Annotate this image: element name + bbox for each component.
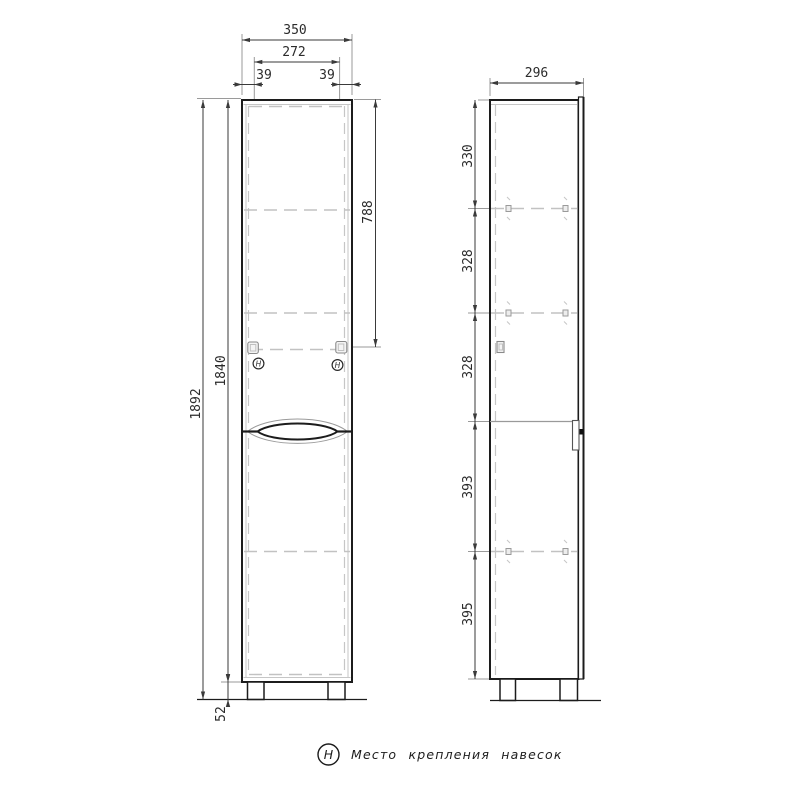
cabinet-drawing-svg: H H 350 272 39 39 [0,0,800,800]
dim-hinge-span: 272 [282,45,305,60]
legend: H Место крепления навесок [318,744,563,765]
dim-hinge-offset-left: 39 [256,68,272,83]
dim-section-5: 395 [461,602,476,625]
technical-drawing-page: H H 350 272 39 39 [0,0,800,800]
cabinet-side-body [490,100,579,679]
side-legs [490,679,601,701]
handle-side-profile [573,421,580,451]
front-legs [197,682,367,700]
side-view: 296 330 328 328 393 395 [461,66,601,701]
dim-hinge-from-top: 788 [361,200,376,223]
dim-overall-width: 350 [283,23,306,38]
dim-total-height: 1892 [189,388,204,419]
hinge-symbol-letter: H [256,359,262,368]
legend-label: Место крепления навесок [351,747,563,762]
dim-section-2: 328 [461,249,476,272]
legend-hinge-letter: H [324,747,334,762]
dim-section-3: 328 [461,355,476,378]
front-view: H H 350 272 39 39 [189,23,381,722]
dim-section-4: 393 [461,475,476,498]
dim-body-height: 1840 [214,355,229,386]
hinge-side-marker [497,342,504,353]
dim-hinge-offset-right: 39 [319,68,335,83]
cabinet-front-body [242,100,352,682]
dim-leg-height: 52 [214,706,229,722]
dim-depth: 296 [525,66,548,81]
dim-section-1: 330 [461,144,476,167]
hinge-symbol-letter: H [335,361,341,370]
